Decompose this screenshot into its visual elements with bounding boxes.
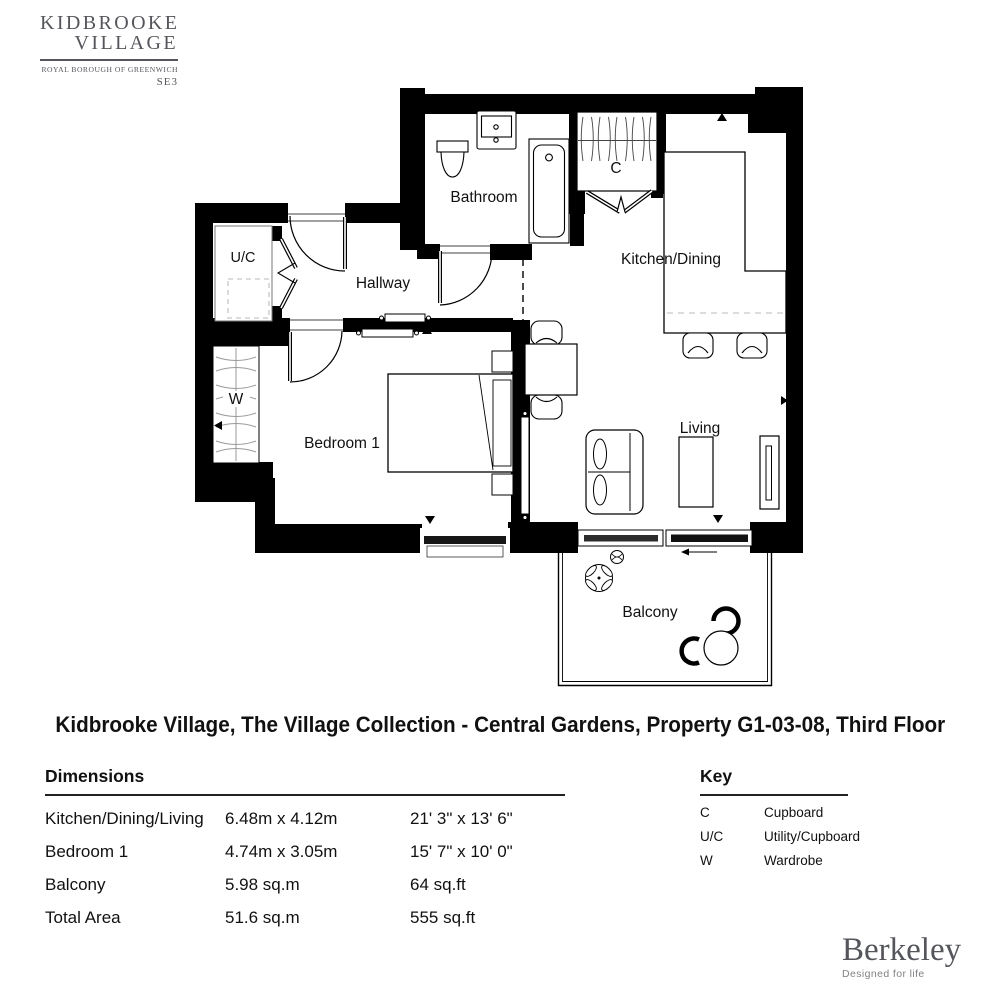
key-row: W Wardrobe xyxy=(700,853,870,868)
property-title: Kidbrooke Village, The Village Collectio… xyxy=(0,712,1000,738)
dim-metric: 5.98 sq.m xyxy=(225,875,410,895)
dim-imperial: 15' 7" x 10' 0" xyxy=(410,842,565,862)
bedside-table xyxy=(492,474,513,495)
berkeley-logo: Berkeley xyxy=(842,934,961,967)
dim-label: Kitchen/Dining/Living xyxy=(45,809,225,829)
floor-plan: Bathroom C Kitchen/Dining Hallway U/C W … xyxy=(0,0,1000,700)
room-label-balcony: Balcony xyxy=(622,604,677,621)
pillow xyxy=(493,380,511,466)
plant xyxy=(584,551,624,593)
key-row: U/C Utility/Cupboard xyxy=(700,829,870,844)
dimensions-heading: Dimensions xyxy=(45,766,565,796)
dining-chair xyxy=(531,395,562,419)
key-meaning: Wardrobe xyxy=(764,853,870,868)
room-label-cupboard: C xyxy=(610,160,621,177)
key-row: C Cupboard xyxy=(700,805,870,820)
dim-label: Bedroom 1 xyxy=(45,842,225,862)
toilet-cistern xyxy=(437,141,468,152)
room-label-hallway: Hallway xyxy=(356,275,411,292)
key-heading: Key xyxy=(700,766,848,796)
table-row: Kitchen/Dining/Living 6.48m x 4.12m 21' … xyxy=(45,809,565,829)
footer-brand: Berkeley Designed for life xyxy=(842,934,961,980)
sliding-door xyxy=(578,530,752,556)
coffee-table xyxy=(679,437,713,507)
bedside-table xyxy=(492,351,513,372)
dim-metric: 4.74m x 3.05m xyxy=(225,842,410,862)
balcony-chair xyxy=(682,639,699,664)
bathroom-fixtures xyxy=(437,111,569,243)
dim-imperial: 64 sq.ft xyxy=(410,875,565,895)
stool xyxy=(683,333,713,358)
entrance-door xyxy=(288,214,345,271)
key-meaning: Cupboard xyxy=(764,805,870,820)
balcony-table-chairs xyxy=(682,609,739,666)
room-label-utility: U/C xyxy=(231,250,256,266)
toilet-bowl xyxy=(441,152,464,177)
table-row: Balcony 5.98 sq.m 64 sq.ft xyxy=(45,875,565,895)
dim-label: Total Area xyxy=(45,908,225,928)
key-abbr: C xyxy=(700,805,764,820)
dimensions-table: Dimensions Kitchen/Dining/Living 6.48m x… xyxy=(45,766,565,928)
balcony-chair xyxy=(714,609,739,634)
utility-cupboard xyxy=(215,226,296,321)
berkeley-tagline: Designed for life xyxy=(842,968,961,980)
room-label-bathroom: Bathroom xyxy=(450,189,517,206)
dim-imperial: 21' 3" x 13' 6" xyxy=(410,809,565,829)
dim-metric: 6.48m x 4.12m xyxy=(225,809,410,829)
bifold-doors xyxy=(278,239,296,308)
room-label-bedroom1: Bedroom 1 xyxy=(304,435,380,452)
dim-imperial: 555 sq.ft xyxy=(410,908,565,928)
table-row: Bedroom 1 4.74m x 3.05m 15' 7" x 10' 0" xyxy=(45,842,565,862)
stool xyxy=(737,333,767,358)
room-label-living: Living xyxy=(680,420,721,437)
dim-metric: 51.6 sq.m xyxy=(225,908,410,928)
key-abbr: W xyxy=(700,853,764,868)
table-row: Total Area 51.6 sq.m 555 sq.ft xyxy=(45,908,565,928)
dining-table xyxy=(525,344,577,395)
doors xyxy=(288,214,492,382)
cupboard-doors xyxy=(587,191,652,212)
key-meaning: Utility/Cupboard xyxy=(764,829,870,844)
dining-set xyxy=(525,321,577,419)
bedroom-window xyxy=(420,528,510,557)
bed xyxy=(388,351,513,495)
bedroom-door xyxy=(290,320,343,382)
radiator xyxy=(521,417,529,514)
key-table: Key C Cupboard U/C Utility/Cupboard W Wa… xyxy=(700,766,870,868)
bathroom-door xyxy=(440,246,492,305)
living-furniture xyxy=(521,412,779,520)
room-label-wardrobe: W xyxy=(229,391,244,408)
key-abbr: U/C xyxy=(700,829,764,844)
dim-label: Balcony xyxy=(45,875,225,895)
balcony-table xyxy=(704,631,738,665)
dining-chair xyxy=(531,321,562,345)
room-label-kitchen-dining: Kitchen/Dining xyxy=(621,251,721,268)
